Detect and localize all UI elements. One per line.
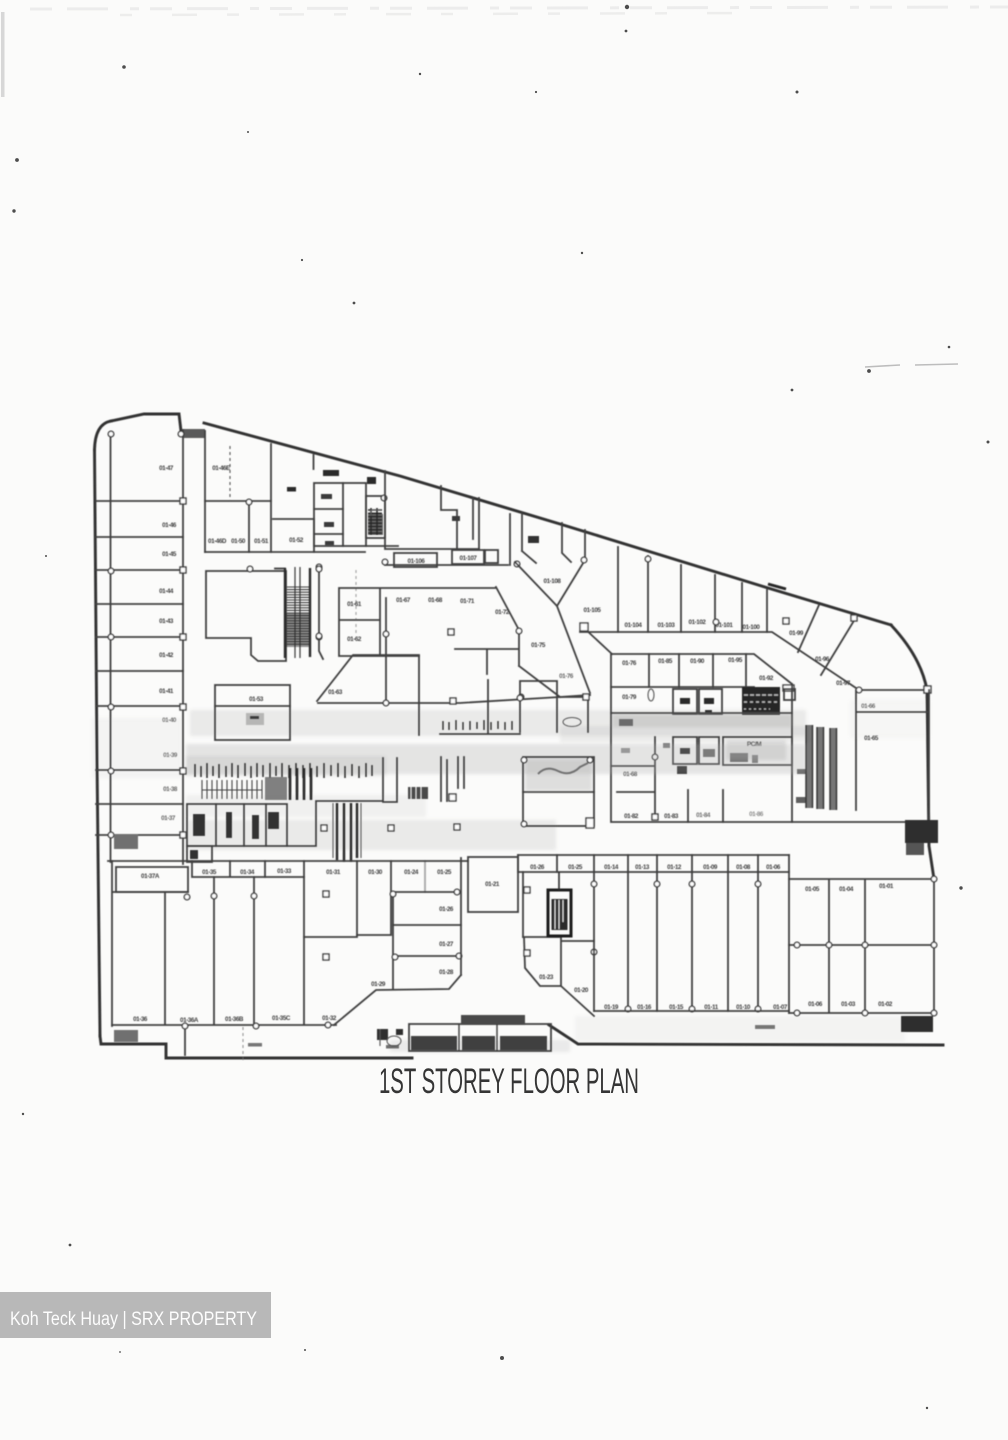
svg-text:01-108: 01-108 (544, 578, 562, 585)
svg-text:01-100: 01-100 (743, 624, 761, 631)
svg-text:01-35C: 01-35C (272, 1015, 291, 1022)
svg-text:01-04: 01-04 (839, 886, 854, 893)
svg-text:01-44: 01-44 (159, 588, 174, 595)
svg-text:01-61: 01-61 (347, 601, 362, 608)
svg-text:01-26: 01-26 (439, 906, 454, 913)
svg-text:01-62: 01-62 (347, 636, 362, 643)
svg-text:01-21: 01-21 (485, 881, 500, 888)
svg-text:01-35: 01-35 (202, 869, 217, 876)
svg-text:01-30: 01-30 (368, 869, 383, 876)
svg-text:01-25: 01-25 (568, 864, 583, 871)
svg-text:01-27: 01-27 (439, 941, 454, 948)
svg-text:01-92: 01-92 (759, 675, 774, 682)
svg-text:01-79: 01-79 (622, 694, 637, 701)
svg-text:01-02: 01-02 (878, 1001, 893, 1008)
svg-text:01-104: 01-104 (625, 622, 643, 629)
svg-text:01-34: 01-34 (240, 869, 255, 876)
svg-text:01-86: 01-86 (749, 811, 764, 818)
svg-text:01-107: 01-107 (460, 555, 478, 562)
svg-text:01-65: 01-65 (864, 735, 879, 742)
svg-text:01-76: 01-76 (559, 673, 574, 680)
svg-text:Koh Teck Huay | SRX PROPERTY: Koh Teck Huay | SRX PROPERTY (10, 1309, 257, 1330)
svg-text:01-63: 01-63 (328, 689, 343, 696)
svg-text:01-20: 01-20 (574, 987, 589, 994)
svg-text:01-41: 01-41 (159, 688, 174, 695)
svg-text:01-33: 01-33 (277, 868, 292, 875)
svg-text:01-52: 01-52 (289, 537, 304, 544)
svg-text:01-46E: 01-46E (212, 465, 230, 472)
svg-text:01-45: 01-45 (162, 551, 177, 558)
svg-text:01-102: 01-102 (689, 619, 707, 626)
svg-text:01-14: 01-14 (604, 864, 619, 871)
svg-text:01-01: 01-01 (879, 883, 894, 890)
svg-text:01-26: 01-26 (530, 864, 545, 871)
svg-text:01-97: 01-97 (836, 680, 851, 687)
svg-text:1ST STOREY FLOOR PLAN: 1ST STOREY FLOOR PLAN (379, 1062, 639, 1101)
svg-text:01-105: 01-105 (584, 607, 602, 614)
svg-text:01-16: 01-16 (637, 1004, 652, 1011)
svg-text:01-12: 01-12 (667, 864, 682, 871)
svg-text:01-95: 01-95 (728, 657, 743, 664)
svg-text:01-68: 01-68 (428, 597, 443, 604)
svg-text:01-53: 01-53 (249, 696, 264, 703)
svg-text:01-36: 01-36 (133, 1016, 148, 1023)
svg-text:01-10: 01-10 (736, 1004, 751, 1011)
svg-text:01-42: 01-42 (159, 652, 174, 659)
svg-text:01-46: 01-46 (162, 522, 177, 529)
svg-text:01-83: 01-83 (664, 813, 679, 820)
svg-text:01-36B: 01-36B (225, 1016, 244, 1023)
svg-text:01-51: 01-51 (254, 538, 269, 545)
svg-text:01-24: 01-24 (404, 869, 419, 876)
svg-text:01-76: 01-76 (622, 660, 637, 667)
svg-text:01-103: 01-103 (658, 622, 676, 629)
svg-text:01-07: 01-07 (773, 1004, 788, 1011)
svg-text:01-28: 01-28 (439, 969, 454, 976)
svg-text:01-03: 01-03 (841, 1001, 856, 1008)
svg-text:01-71: 01-71 (460, 598, 475, 605)
svg-text:01-37: 01-37 (161, 815, 176, 822)
svg-text:01-40: 01-40 (162, 717, 177, 724)
svg-text:01-09: 01-09 (703, 864, 718, 871)
svg-text:01-90: 01-90 (690, 658, 705, 665)
svg-text:01-99: 01-99 (789, 630, 804, 637)
svg-text:01-46D: 01-46D (208, 538, 227, 545)
svg-text:01-37A: 01-37A (141, 873, 160, 880)
svg-text:01-47: 01-47 (159, 465, 174, 472)
svg-text:01-05: 01-05 (805, 886, 820, 893)
svg-text:01-75: 01-75 (531, 642, 546, 649)
svg-text:01-25: 01-25 (437, 869, 452, 876)
svg-text:01-84: 01-84 (696, 812, 711, 819)
svg-text:01-06: 01-06 (808, 1001, 823, 1008)
svg-text:01-19: 01-19 (604, 1004, 619, 1011)
svg-text:01-31: 01-31 (326, 869, 341, 876)
svg-text:01-11: 01-11 (704, 1004, 718, 1011)
svg-text:01-67: 01-67 (396, 597, 411, 604)
svg-text:01-15: 01-15 (669, 1004, 684, 1011)
svg-text:01-39: 01-39 (163, 752, 178, 759)
svg-text:01-36A: 01-36A (180, 1017, 199, 1024)
svg-text:01-43: 01-43 (159, 618, 174, 625)
svg-text:01-72: 01-72 (495, 609, 510, 616)
svg-text:01-66: 01-66 (861, 703, 876, 710)
svg-text:01-13: 01-13 (635, 864, 650, 871)
svg-text:01-85: 01-85 (658, 658, 673, 665)
svg-text:01-06: 01-06 (766, 864, 781, 871)
svg-text:01-38: 01-38 (163, 786, 178, 793)
svg-text:01-29: 01-29 (371, 981, 386, 988)
svg-text:01-32: 01-32 (322, 1015, 337, 1022)
svg-text:01-96: 01-96 (815, 656, 830, 663)
svg-text:01-82: 01-82 (624, 813, 639, 820)
svg-text:01-106: 01-106 (408, 558, 426, 565)
svg-text:01-50: 01-50 (231, 538, 246, 545)
svg-text:01-08: 01-08 (736, 864, 751, 871)
svg-text:01-23: 01-23 (539, 974, 554, 981)
